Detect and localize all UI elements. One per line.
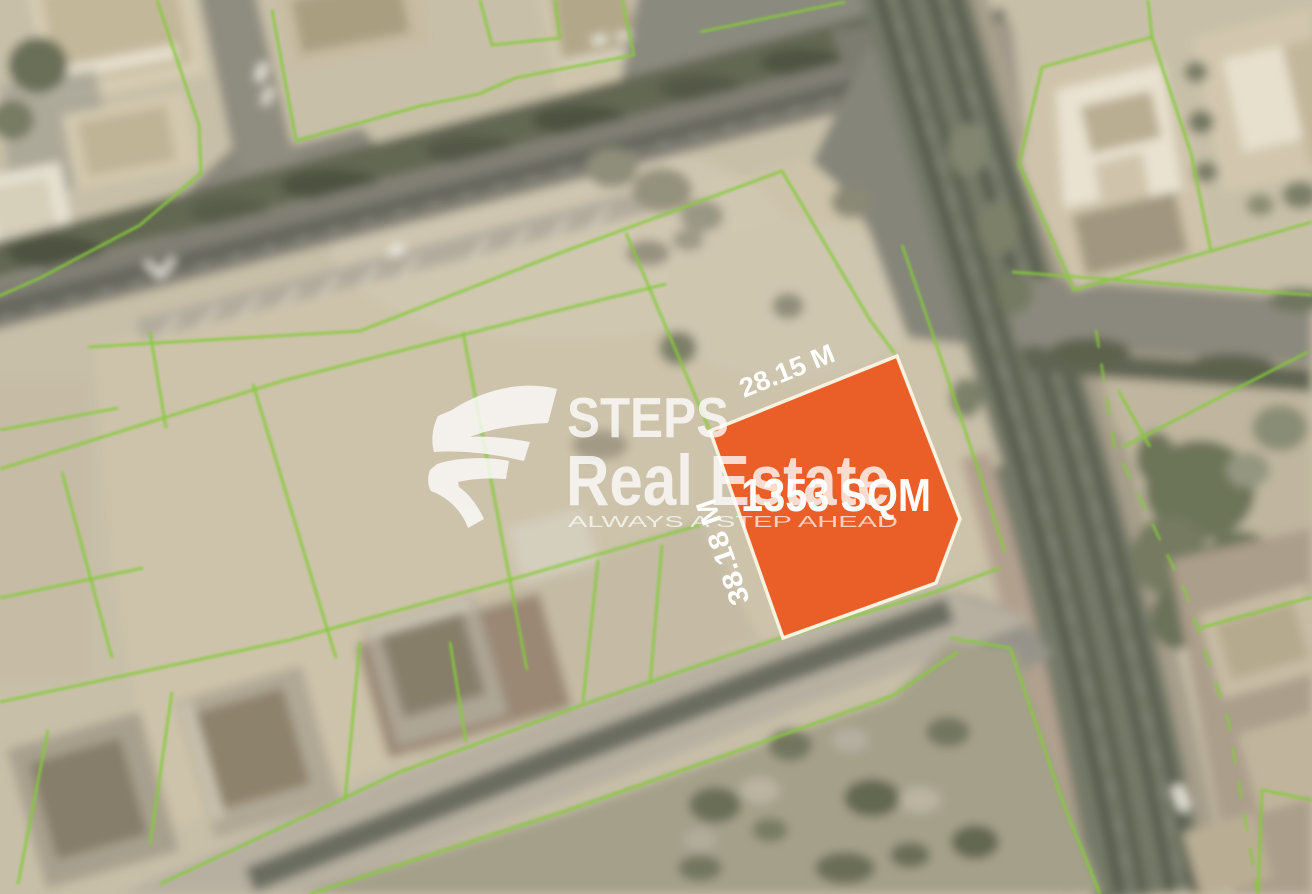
svg-text:1353 SQM: 1353 SQM (741, 469, 931, 521)
svg-text:STEPS: STEPS (567, 386, 729, 450)
